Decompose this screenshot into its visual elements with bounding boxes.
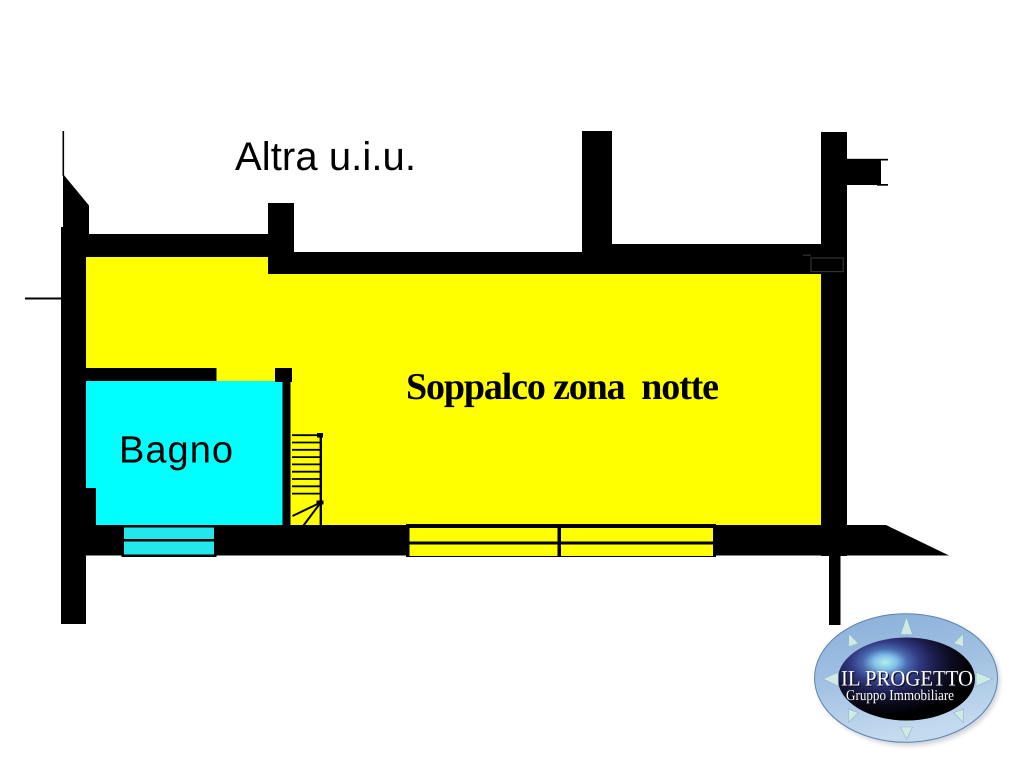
svg-text:Altra u.i.u.: Altra u.i.u.: [235, 135, 416, 179]
svg-text:Gruppo Immobiliare: Gruppo Immobiliare: [846, 688, 954, 704]
svg-text:IL PROGETTO: IL PROGETTO: [841, 666, 973, 691]
svg-text:Bagno: Bagno: [119, 430, 233, 472]
svg-text:Soppalco zona notte: Soppalco zona notte: [406, 366, 719, 408]
